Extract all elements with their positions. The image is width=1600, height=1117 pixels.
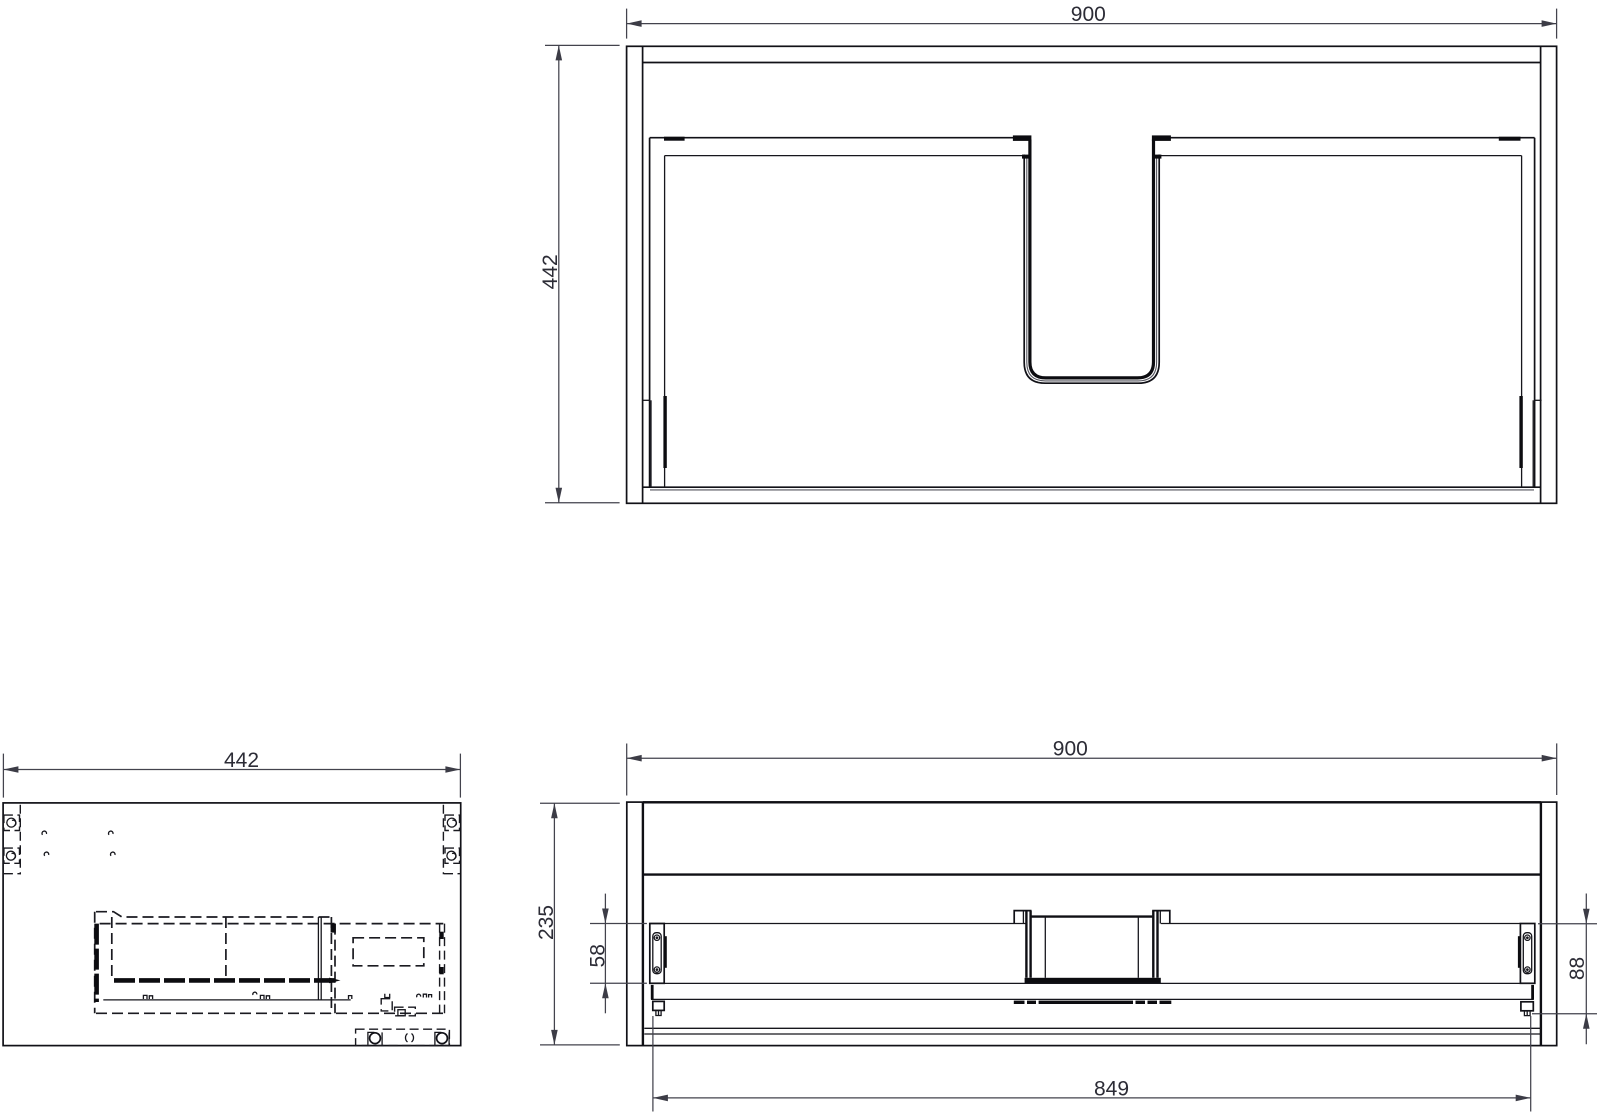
svg-text:442: 442 bbox=[539, 254, 562, 289]
svg-text:900: 900 bbox=[1053, 738, 1088, 761]
svg-text:58: 58 bbox=[586, 944, 609, 967]
svg-text:442: 442 bbox=[224, 749, 259, 772]
svg-text:849: 849 bbox=[1094, 1077, 1129, 1100]
svg-text:900: 900 bbox=[1071, 3, 1106, 26]
svg-text:235: 235 bbox=[535, 905, 558, 940]
svg-text:88: 88 bbox=[1566, 957, 1589, 980]
